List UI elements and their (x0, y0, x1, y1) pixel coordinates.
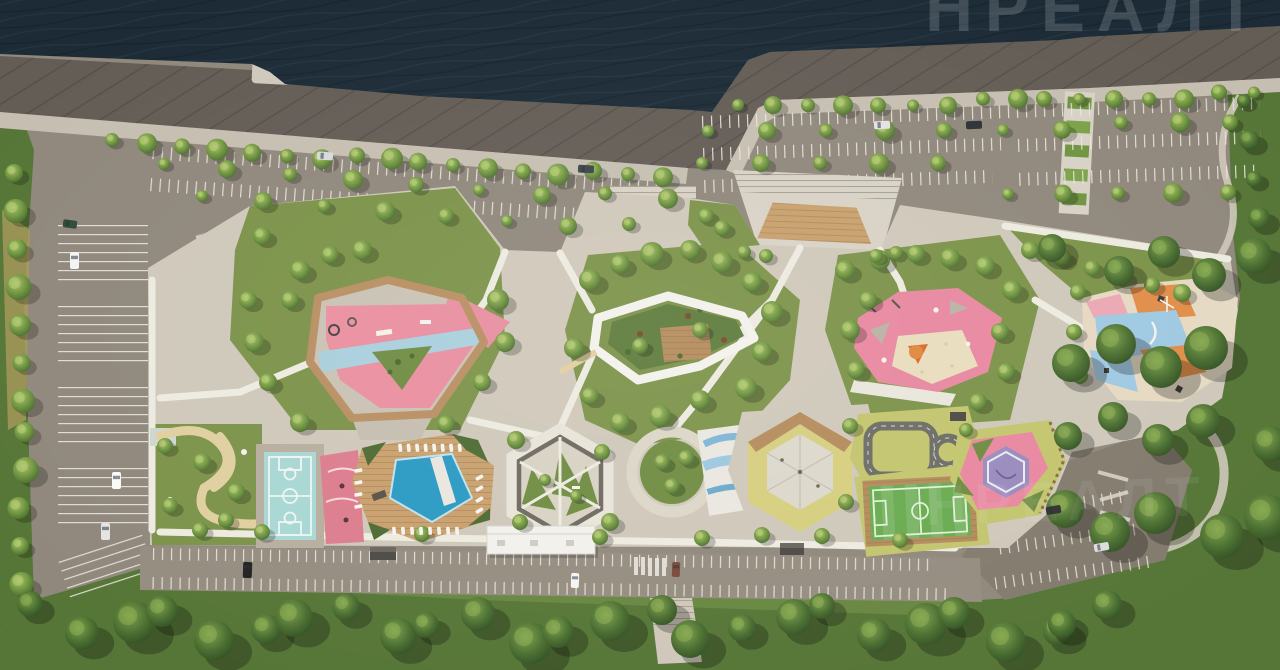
site-plan: West green strip South woodland East woo… (0, 0, 1280, 670)
aerial-masterplan-render: West green strip South woodland East woo… (0, 0, 1280, 670)
sun-glow (0, 0, 1280, 670)
